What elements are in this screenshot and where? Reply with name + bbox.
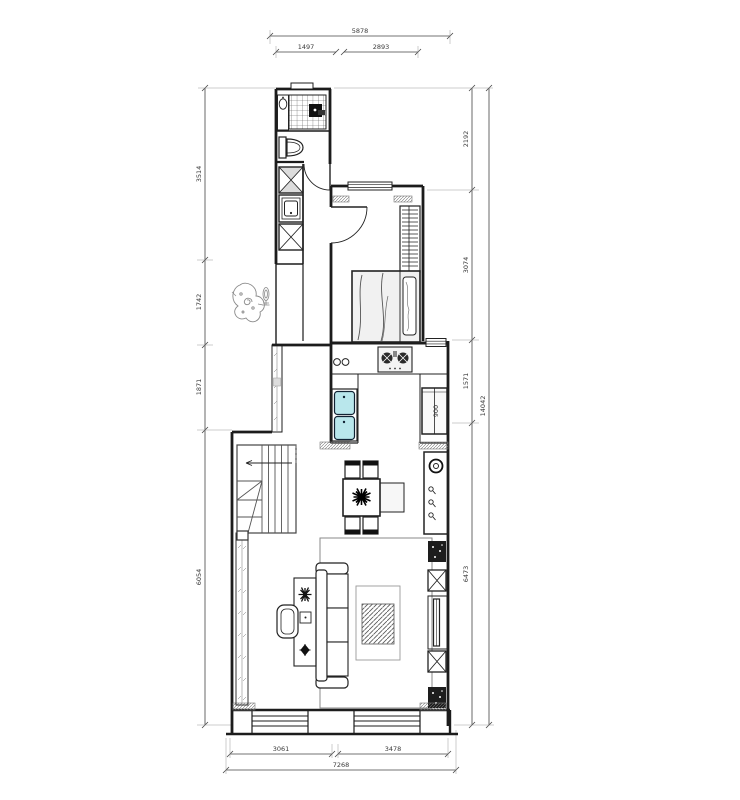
dim-top-seg2: 2893 bbox=[373, 43, 390, 51]
sill-hatch-right bbox=[420, 703, 446, 710]
sofa bbox=[316, 563, 348, 688]
dining-area bbox=[343, 452, 448, 534]
kitchen: 900 bbox=[320, 347, 448, 449]
double-sink bbox=[332, 389, 357, 441]
bathroom-vanity-sink bbox=[278, 95, 289, 130]
left-window-strip bbox=[236, 533, 248, 705]
plant-decor bbox=[232, 283, 264, 322]
gas-stove bbox=[378, 347, 412, 372]
dim-right-total: 14042 bbox=[479, 396, 487, 417]
entry-cabinet bbox=[424, 452, 448, 534]
hooks bbox=[429, 487, 436, 520]
laundry-sink bbox=[279, 195, 303, 222]
dim-bottom-seg2: 3478 bbox=[385, 745, 402, 753]
dim-right-seg2: 3074 bbox=[462, 257, 470, 274]
newel-post bbox=[237, 531, 248, 540]
floor-plan-page: 5878 1497 2893 3514 1742 1871 6054 2192 bbox=[0, 0, 740, 800]
dining-table bbox=[343, 479, 404, 516]
dim-right-seg3: 1571 bbox=[462, 373, 470, 390]
table-lamp bbox=[299, 588, 312, 602]
toilet bbox=[279, 137, 303, 158]
shower bbox=[289, 95, 326, 129]
wardrobe bbox=[400, 206, 420, 272]
kitchen-threshold-right bbox=[419, 442, 448, 449]
dim-right-seg4: 6473 bbox=[462, 566, 470, 583]
dim-left-seg4: 6054 bbox=[195, 569, 203, 586]
bed bbox=[352, 271, 420, 342]
kitchen-threshold-left bbox=[320, 442, 350, 449]
side-window bbox=[426, 339, 446, 347]
dim-top-seg1: 1497 bbox=[298, 43, 315, 51]
column-box-bottom bbox=[428, 651, 446, 672]
counter-rings bbox=[334, 359, 349, 366]
plant-box-top bbox=[428, 541, 446, 562]
tv-wall bbox=[428, 541, 447, 708]
storage-box bbox=[279, 224, 303, 250]
coffee-table bbox=[356, 586, 400, 660]
bathroom-door-arc bbox=[304, 164, 330, 190]
fridge: 900 bbox=[422, 388, 447, 434]
curtain-box-left bbox=[333, 196, 349, 202]
dim-left-seg2: 1742 bbox=[195, 294, 203, 311]
tv-console bbox=[428, 596, 447, 649]
dimensions-bottom: 3061 3478 7268 bbox=[223, 730, 459, 774]
floor-plan-canvas: 5878 1497 2893 3514 1742 1871 6054 2192 bbox=[0, 0, 740, 800]
column-box-top bbox=[428, 570, 446, 591]
curtain-box-right bbox=[394, 196, 412, 202]
dim-bottom-total: 7268 bbox=[333, 761, 350, 769]
bedroom bbox=[331, 182, 446, 347]
dim-top-total: 5878 bbox=[352, 27, 369, 35]
washing-machine bbox=[279, 167, 303, 193]
bedroom-door-arc bbox=[331, 207, 367, 243]
dimensions-top: 5878 1497 2893 bbox=[267, 27, 453, 58]
staircase bbox=[237, 445, 296, 540]
dim-left-seg3: 1871 bbox=[195, 379, 203, 396]
dim-bottom-seg1: 3061 bbox=[273, 745, 290, 753]
stair-direction-arrow bbox=[246, 461, 292, 466]
fridge-width-label: 900 bbox=[432, 405, 440, 417]
bedroom-window bbox=[348, 182, 392, 190]
armchair bbox=[277, 605, 298, 638]
decor-item bbox=[300, 644, 311, 656]
dim-left-seg1: 3514 bbox=[195, 166, 203, 183]
dim-right-seg1: 2192 bbox=[462, 131, 470, 148]
